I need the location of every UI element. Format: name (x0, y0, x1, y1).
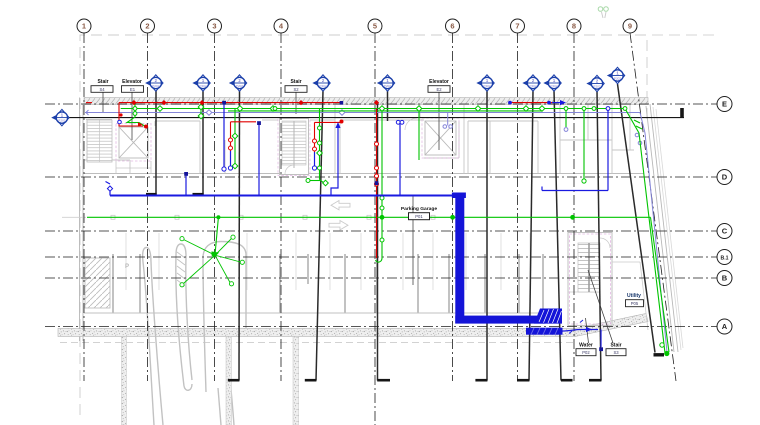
svg-text:P202: P202 (550, 84, 558, 88)
svg-text:C: C (722, 227, 728, 236)
svg-text:5: 5 (373, 22, 377, 31)
svg-text:P202: P202 (236, 84, 244, 88)
svg-text:E: E (722, 100, 727, 109)
svg-text:P202: P202 (529, 84, 537, 88)
svg-text:D: D (722, 173, 728, 182)
svg-text:E2: E2 (436, 87, 442, 92)
svg-text:Utility: Utility (627, 293, 641, 299)
svg-text:B.1: B.1 (720, 255, 728, 261)
svg-text:P01: P01 (415, 214, 423, 219)
svg-text:P05: P05 (631, 301, 639, 306)
svg-text:P202: P202 (483, 84, 491, 88)
svg-text:P202: P202 (58, 119, 66, 123)
svg-text:P02: P02 (582, 350, 590, 355)
svg-text:Elevator: Elevator (429, 79, 449, 85)
svg-text:Water: Water (579, 343, 593, 349)
svg-text:2: 2 (145, 22, 149, 31)
svg-text:7: 7 (515, 22, 519, 31)
svg-text:E1: E1 (130, 87, 136, 92)
svg-text:3: 3 (212, 22, 216, 31)
svg-text:6: 6 (450, 22, 454, 31)
svg-text:P202: P202 (614, 77, 622, 81)
svg-text:P202: P202 (199, 84, 207, 88)
svg-text:Stair: Stair (97, 79, 108, 85)
svg-text:P202: P202 (384, 84, 392, 88)
svg-text:S3: S3 (613, 350, 619, 355)
svg-text:P: P (125, 264, 129, 270)
svg-text:1: 1 (82, 22, 86, 31)
svg-text:S2: S2 (293, 87, 299, 92)
svg-text:Stair: Stair (610, 343, 621, 349)
svg-text:B: B (722, 274, 728, 283)
svg-text:Parking Garage: Parking Garage (401, 206, 437, 212)
svg-text:8: 8 (572, 22, 576, 31)
svg-text:S4: S4 (99, 87, 105, 92)
svg-text:Stair: Stair (290, 79, 301, 85)
svg-text:P202: P202 (593, 85, 601, 89)
svg-text:Elevator: Elevator (122, 79, 142, 85)
svg-text:P202: P202 (152, 84, 160, 88)
svg-text:A: A (722, 322, 728, 331)
svg-text:9: 9 (628, 22, 632, 31)
svg-text:P202: P202 (319, 84, 327, 88)
